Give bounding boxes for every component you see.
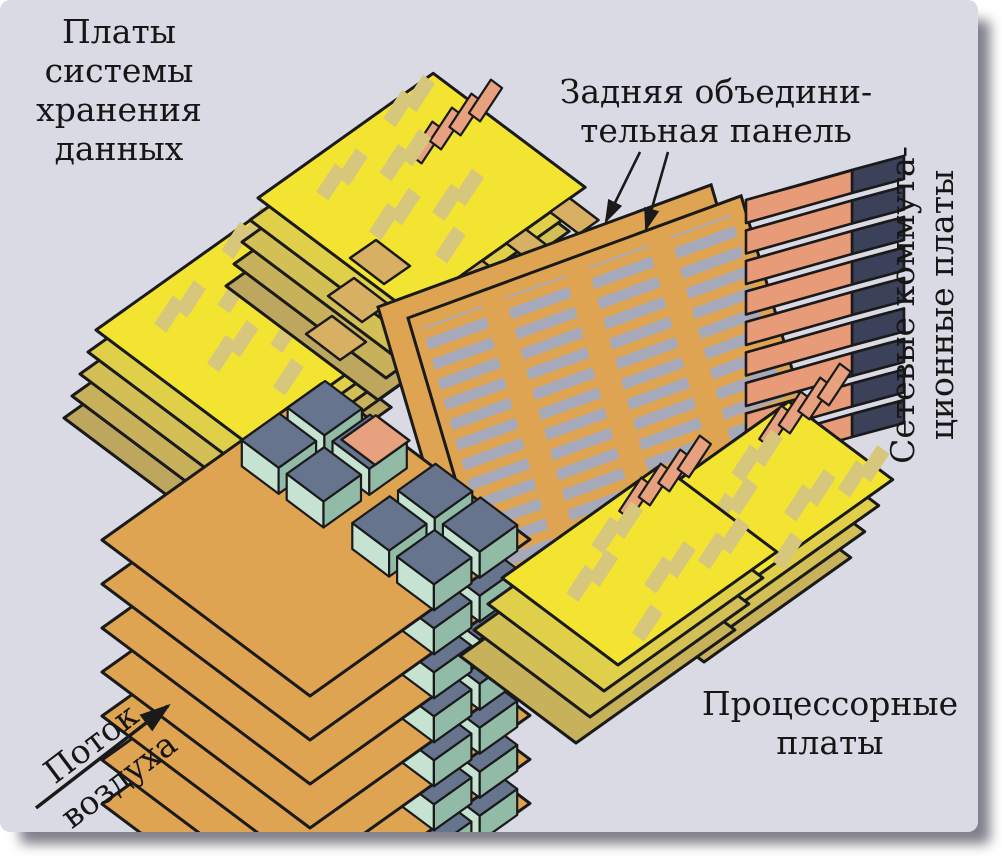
label-backplane: Задняя объедини- тельная панель: [530, 72, 902, 150]
label-processor-boards: Процессорные платы: [650, 684, 1002, 762]
label-line: тельная панель: [530, 111, 902, 150]
label-line: платы: [650, 723, 1002, 762]
label-line: Задняя объедини-: [530, 72, 902, 111]
label-line: Процессорные: [650, 684, 1002, 723]
figure-stage: Платы системы хранения данных Задняя объ…: [0, 0, 1002, 856]
label-line: Платы: [10, 12, 228, 51]
label-line: ционные платы: [922, 125, 961, 485]
label-line: данных: [10, 129, 228, 168]
label-line: хранения: [10, 90, 228, 129]
label-line: системы: [10, 51, 228, 90]
label-storage-boards: Платы системы хранения данных: [10, 12, 228, 168]
label-network-boards: Сетевые коммута- ционные платы: [883, 125, 961, 485]
label-line: Сетевые коммута-: [883, 125, 922, 485]
pointer-arrow: [606, 152, 640, 221]
